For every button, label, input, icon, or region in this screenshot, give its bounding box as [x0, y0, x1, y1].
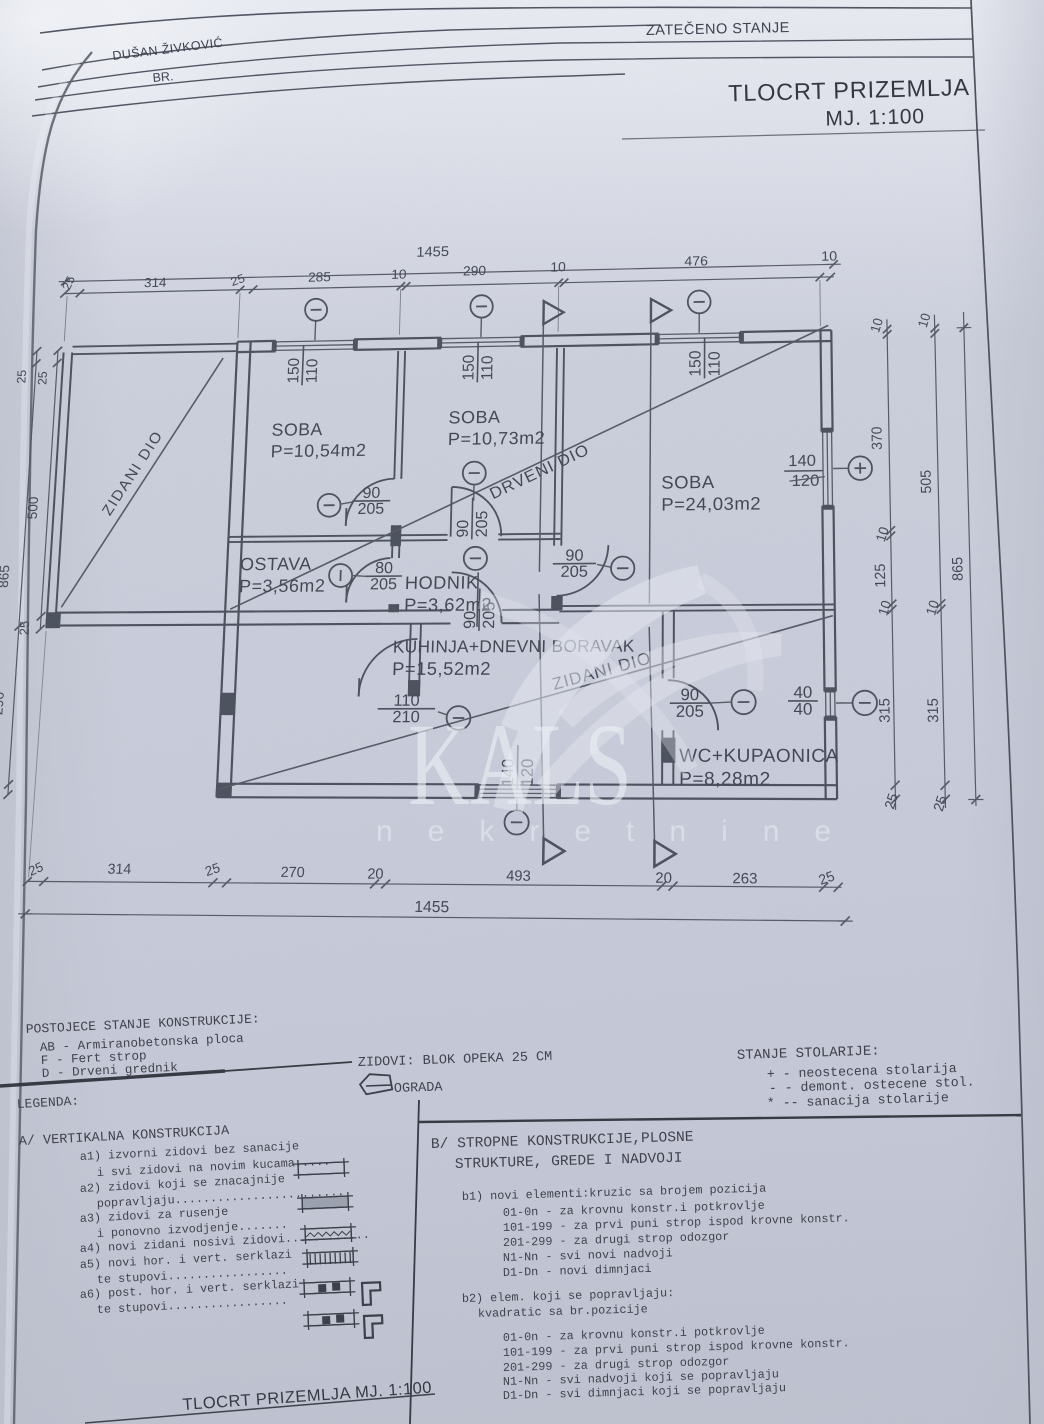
svg-text:kvadratic sa br.pozicije: kvadratic sa br.pozicije: [478, 1302, 648, 1321]
svg-text:TLOCRT PRIZEMLJA MJ. 1:100: TLOCRT PRIZEMLJA MJ. 1:100: [182, 1379, 433, 1414]
svg-text:LEGENDA:: LEGENDA:: [16, 1094, 79, 1112]
svg-text:STRUKTURE, GREDE I NADVOJI: STRUKTURE, GREDE I NADVOJI: [455, 1151, 683, 1173]
svg-text:OGRADA: OGRADA: [394, 1080, 444, 1097]
svg-text:B/ STROPNE KONSTRUKCIJE,PLOSNE: B/ STROPNE KONSTRUKCIJE,PLOSNE: [431, 1130, 694, 1153]
svg-text:STANJE STOLARIJE:: STANJE STOLARIJE:: [737, 1044, 880, 1064]
svg-text:ZIDOVI: BLOK OPEKA 25 CM: ZIDOVI: BLOK OPEKA 25 CM: [358, 1050, 553, 1071]
svg-text:D1-Dn - novi dimnjaci: D1-Dn - novi dimnjaci: [503, 1262, 652, 1280]
